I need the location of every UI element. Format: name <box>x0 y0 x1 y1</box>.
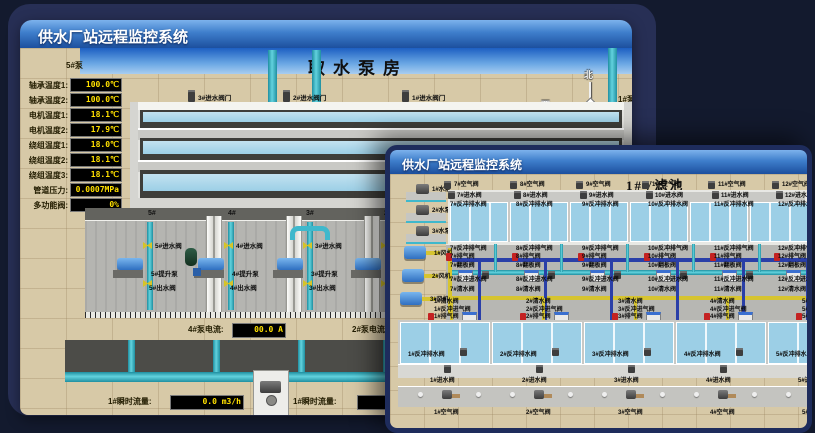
filter-pool <box>630 202 688 242</box>
air-valve-elbow <box>544 394 552 398</box>
walkway-valve-label: 9#反冲进水阀 <box>582 277 619 283</box>
inlet-valve-label: 12#进水阀 <box>785 193 812 199</box>
air-valve-label: 3#空气阀 <box>618 410 643 416</box>
branch-pipe <box>478 260 481 320</box>
flow-label: 1#瞬时流量: <box>293 398 337 406</box>
air-valve-elbow <box>452 394 460 398</box>
filter-pool <box>450 202 508 242</box>
ledge-stud <box>418 392 423 397</box>
inlet-valve-label: 8#进水阀 <box>523 193 548 199</box>
drain-valve-icon[interactable] <box>644 348 651 356</box>
air-valve-icon[interactable] <box>442 390 452 399</box>
walkway-valve-label: 8#反冲进水阀 <box>516 277 553 283</box>
walkway-valve-label: 7#清水阀 <box>450 287 475 293</box>
bay-pipe <box>228 222 234 310</box>
bay-label: 4# <box>228 210 236 217</box>
bay-pump-icon[interactable] <box>117 258 143 270</box>
flow-label: 1#瞬时流量: <box>108 398 152 406</box>
ledge-stud <box>752 392 757 397</box>
ledge-stud <box>660 392 665 397</box>
inlet-valve-label: 3#进水阀 <box>614 378 639 384</box>
inlet-valve-icon[interactable] <box>712 191 719 199</box>
branch-pipe <box>626 244 629 272</box>
walkway-valve-label: 3#清水阀 <box>618 299 643 305</box>
air-valve-label: 1#空气阀 <box>434 410 459 416</box>
inlet-valve-label: 2#进水阀 <box>522 378 547 384</box>
ledge-stud <box>602 392 607 397</box>
inlet-valve-label: 1#进水阀门 <box>412 96 445 103</box>
filter-pool <box>750 202 808 242</box>
branch-pipe <box>758 244 761 272</box>
filter-pump-icon[interactable] <box>416 184 429 194</box>
bay-valve-in-label: 4#进水阀 <box>236 244 263 251</box>
front-window-title: 供水厂站远程监控系统 <box>402 156 522 173</box>
walkway-valve-label: 7#排气阀 <box>450 254 475 260</box>
drain-valve-label: 9#反冲排水阀 <box>582 202 619 208</box>
walkway-valve-label: 12#排气阀 <box>778 254 806 260</box>
air-valve-label: 4#空气阀 <box>710 410 735 416</box>
filter-pump-icon[interactable] <box>416 205 429 215</box>
air-valve-icon[interactable] <box>534 390 544 399</box>
inlet-valve-icon[interactable] <box>444 365 451 373</box>
walkway-valve-label: 9#反冲排气阀 <box>582 246 619 252</box>
inlet-valve-icon[interactable] <box>283 90 290 102</box>
current-label: 4#泵电流: <box>188 326 224 334</box>
flow-value: 0.0 m3/h <box>202 397 241 407</box>
filter-pump-icon[interactable] <box>416 226 429 236</box>
inlet-valve-icon[interactable] <box>536 365 543 373</box>
drain-valve-label: 8#反冲排水阀 <box>516 202 553 208</box>
walkway-valve-label: 4#清水阀 <box>710 299 735 305</box>
pool-lane <box>551 323 553 363</box>
walkway-valve-label: 10#清水阀 <box>648 287 676 293</box>
drain-valve-icon[interactable] <box>460 348 467 356</box>
inlet-valve-icon[interactable] <box>188 90 195 102</box>
branch-pipe <box>692 244 695 272</box>
drain-valve-label: 3#反冲排水阀 <box>592 352 629 358</box>
filter-pool <box>510 202 568 242</box>
air-valve-icon[interactable] <box>772 181 779 189</box>
pool-lane <box>459 323 461 363</box>
pool-lane <box>469 203 471 241</box>
branch-pipe <box>560 244 563 272</box>
inlet-valve-label: 10#进水阀 <box>655 193 683 199</box>
bay-valve-out-label: 3#出水阀 <box>309 286 336 293</box>
window-v-filter-pool: 供水厂站远程监控系统 1#V滤池 1#水泵2#水泵3#水泵1#风机2#风机3#风… <box>385 145 812 433</box>
bay-valve-in-label: 5#进水阀 <box>155 244 182 251</box>
pipe <box>298 340 305 376</box>
walkway-valve-label: 10#排气阀 <box>648 254 676 260</box>
filter-pool <box>690 202 748 242</box>
air-valve-icon[interactable] <box>444 181 451 189</box>
branch-pipe <box>494 244 497 272</box>
walkway-valve-label: 9#清水阀 <box>582 287 607 293</box>
air-valve-label: 10#空气阀 <box>652 182 680 188</box>
inlet-valve-icon[interactable] <box>776 191 783 199</box>
air-valve-label: 11#空气阀 <box>718 182 746 188</box>
bay-pump-icon[interactable] <box>198 258 224 270</box>
air-valve-icon[interactable] <box>718 390 728 399</box>
walkway-valve-label: 12#翻板阀 <box>778 263 806 269</box>
inlet-valve-label: 7#进水阀 <box>457 193 482 199</box>
branch-pipe <box>676 260 679 320</box>
bay-pump-base <box>351 270 381 278</box>
inlet-valve-label: 3#进水阀门 <box>198 96 231 103</box>
drain-valve-label: 11#反冲排水阀 <box>714 202 754 208</box>
inlet-valve-label: 1#进水阀 <box>430 378 455 384</box>
walkway-valve-label: 7#反冲进水阀 <box>450 277 487 283</box>
pool-lane <box>643 323 645 363</box>
walkway-valve-label: 11#反冲排气阀 <box>714 246 754 252</box>
drain-valve-label: 12#反冲排水阀 <box>778 202 812 208</box>
inlet-valve-label: 11#进水阀 <box>721 193 749 199</box>
walkway-valve-label: 7#翻板阀 <box>450 263 475 269</box>
drain-valve-icon[interactable] <box>552 348 559 356</box>
bay-pipe <box>147 222 153 310</box>
pool-lane <box>529 203 531 241</box>
drain-valve-label: 5#反冲排水阀 <box>776 352 812 358</box>
walkway-valve-label: 5#反冲进气阀 <box>802 307 812 313</box>
bay-valve-in-label: 3#进水阀 <box>315 244 342 251</box>
pool-lane <box>735 323 737 363</box>
inlet-valve-icon[interactable] <box>628 365 635 373</box>
walkway-valve-label: 1#清水阀 <box>434 299 459 305</box>
walkway-valve-label: 8#排气阀 <box>516 254 541 260</box>
flow-value-box: 0.0 m3/h <box>170 395 244 410</box>
walkway-valve-label: 9#排气阀 <box>582 254 607 260</box>
walkway-valve-label: 10#翻板阀 <box>648 263 676 269</box>
walkway-valve-label: 7#反冲排气阀 <box>450 246 487 252</box>
walkway-valve-label: 10#反冲进水阀 <box>648 277 688 283</box>
bay-pump-base <box>113 270 143 278</box>
walkway-valve-label: 8#清水阀 <box>516 287 541 293</box>
bay-valve-out-label: 4#出水阀 <box>230 286 257 293</box>
current-value: 00.0 A <box>254 325 283 335</box>
inlet-valve-label: 5#进水阀 <box>798 378 812 384</box>
drain-valve-label: 4#反冲排水阀 <box>684 352 721 358</box>
inlet-valve-label: 9#进水阀 <box>589 193 614 199</box>
pool-lane <box>669 203 671 241</box>
air-valve-icon[interactable] <box>708 181 715 189</box>
inlet-valve-icon[interactable] <box>402 90 409 102</box>
inlet-valve-icon[interactable] <box>514 191 521 199</box>
bay-valve-out-label: 5#出水阀 <box>149 286 176 293</box>
current-value-box: 00.0 A <box>232 323 286 338</box>
bay-label: 3# <box>306 210 314 217</box>
air-valve-icon[interactable] <box>810 390 812 399</box>
pool-beam <box>398 364 807 378</box>
inlet-valve-label: 2#进水阀门 <box>293 96 326 103</box>
dosing-box-icon <box>193 268 201 276</box>
pool-lane <box>649 203 651 241</box>
walkway-valve-label: 11#反冲进水阀 <box>714 277 754 283</box>
bay-pump-label: 3#提升泵 <box>311 272 338 279</box>
filter-scene: 1#V滤池 1#水泵2#水泵3#水泵1#风机2#风机3#风机 7#反冲排气阀8#… <box>390 174 807 428</box>
air-valve-elbow <box>728 394 736 398</box>
current-label: 2#泵电流: <box>352 326 388 334</box>
front-window-titlebar[interactable]: 供水厂站远程监控系统 <box>390 150 807 175</box>
pool-lane <box>769 203 771 241</box>
drain-valve-label: 2#反冲排水阀 <box>500 352 537 358</box>
ledge-stud <box>510 392 515 397</box>
pool-lane <box>609 203 611 241</box>
pool-lane <box>789 203 791 241</box>
walkway-valve-label: 11#排气阀 <box>714 254 742 260</box>
walkway-valve-label: 9#翻板阀 <box>582 263 607 269</box>
top-pools <box>448 190 807 244</box>
flow-meter-device[interactable] <box>253 370 289 415</box>
air-valve-label: 7#空气阀 <box>454 182 479 188</box>
back-window-title: 供水厂站远程监控系统 <box>38 26 188 47</box>
bay-pump-icon[interactable] <box>277 258 303 270</box>
pool-lane <box>549 203 551 241</box>
air-valve-icon[interactable] <box>576 181 583 189</box>
inlet-valve-icon[interactable] <box>720 365 727 373</box>
air-valve-label: 2#空气阀 <box>526 410 551 416</box>
pool-lane <box>489 203 491 241</box>
air-valve-icon[interactable] <box>642 181 649 189</box>
inlet-valve-icon[interactable] <box>646 191 653 199</box>
bottom-pools: 1#反冲排水阀2#反冲排水阀3#反冲排水阀4#反冲排水阀5#反冲排水阀6#反冲排… <box>390 320 807 428</box>
drain-valve-label: 7#反冲排水阀 <box>450 202 487 208</box>
ledge-stud <box>568 392 573 397</box>
pool-lane <box>729 203 731 241</box>
walkway-valve-label: 12#反冲排气阀 <box>778 246 812 252</box>
bay-pump-label: 4#提升泵 <box>232 272 259 279</box>
air-valve-label: 9#空气阀 <box>586 182 611 188</box>
ledge-stud <box>786 392 791 397</box>
air-valve-icon[interactable] <box>510 181 517 189</box>
pipe <box>128 340 135 376</box>
bay-pump-label: 5#提升泵 <box>151 272 178 279</box>
back-window-titlebar[interactable]: 供水厂站远程监控系统 <box>20 20 632 49</box>
ledge-stud <box>694 392 699 397</box>
drain-valve-label: 1#反冲排水阀 <box>408 352 445 358</box>
dosing-tank-icon[interactable] <box>185 248 197 266</box>
air-valve-label: 5#空气阀 <box>802 410 812 416</box>
bay-upipe <box>290 226 330 240</box>
walkway-valve-label: 2#清水阀 <box>526 299 551 305</box>
filter-pool <box>570 202 628 242</box>
walkway-valve-label: 8#翻板阀 <box>516 263 541 269</box>
inlet-valve-icon[interactable] <box>580 191 587 199</box>
air-valve-label: 12#空气阀 <box>782 182 810 188</box>
walkway-valve-label: 8#反冲排气阀 <box>516 246 553 252</box>
pipe <box>213 340 220 376</box>
desktop: { "colors":{ "titlebar_blue":"#3e7ecb","… <box>0 0 815 420</box>
walkway-valve-label: 12#反冲进水阀 <box>778 277 812 283</box>
backwash-valve-icon[interactable] <box>810 271 812 279</box>
walkway-valve-label: 11#翻板阀 <box>714 263 742 269</box>
walkway-rows: 7#反冲排气阀8#反冲排气阀9#反冲排气阀10#反冲排气阀11#反冲排气阀12#… <box>390 244 807 320</box>
bay-label: 5# <box>148 210 156 217</box>
walkway-valve-label: 12#清水阀 <box>778 287 806 293</box>
pool-lane <box>589 203 591 241</box>
walkway-valve-label: 5#清水阀 <box>802 299 812 305</box>
drain-valve-label: 10#反冲排水阀 <box>648 202 688 208</box>
ledge-stud <box>476 392 481 397</box>
inlet-valve-label: 4#进水阀 <box>706 378 731 384</box>
bay-pump-base <box>273 270 303 278</box>
walkway-valve-label: 10#反冲排气阀 <box>648 246 688 252</box>
pool-lane <box>709 203 711 241</box>
drain-valve-icon[interactable] <box>736 348 743 356</box>
air-valve-elbow <box>636 394 644 398</box>
bay-pump-icon[interactable] <box>355 258 381 270</box>
air-valve-icon[interactable] <box>626 390 636 399</box>
inlet-valve-icon[interactable] <box>448 191 455 199</box>
branch-pipe <box>610 260 613 320</box>
air-valve-label: 8#空气阀 <box>520 182 545 188</box>
walkway-valve-label: 11#清水阀 <box>714 287 742 293</box>
